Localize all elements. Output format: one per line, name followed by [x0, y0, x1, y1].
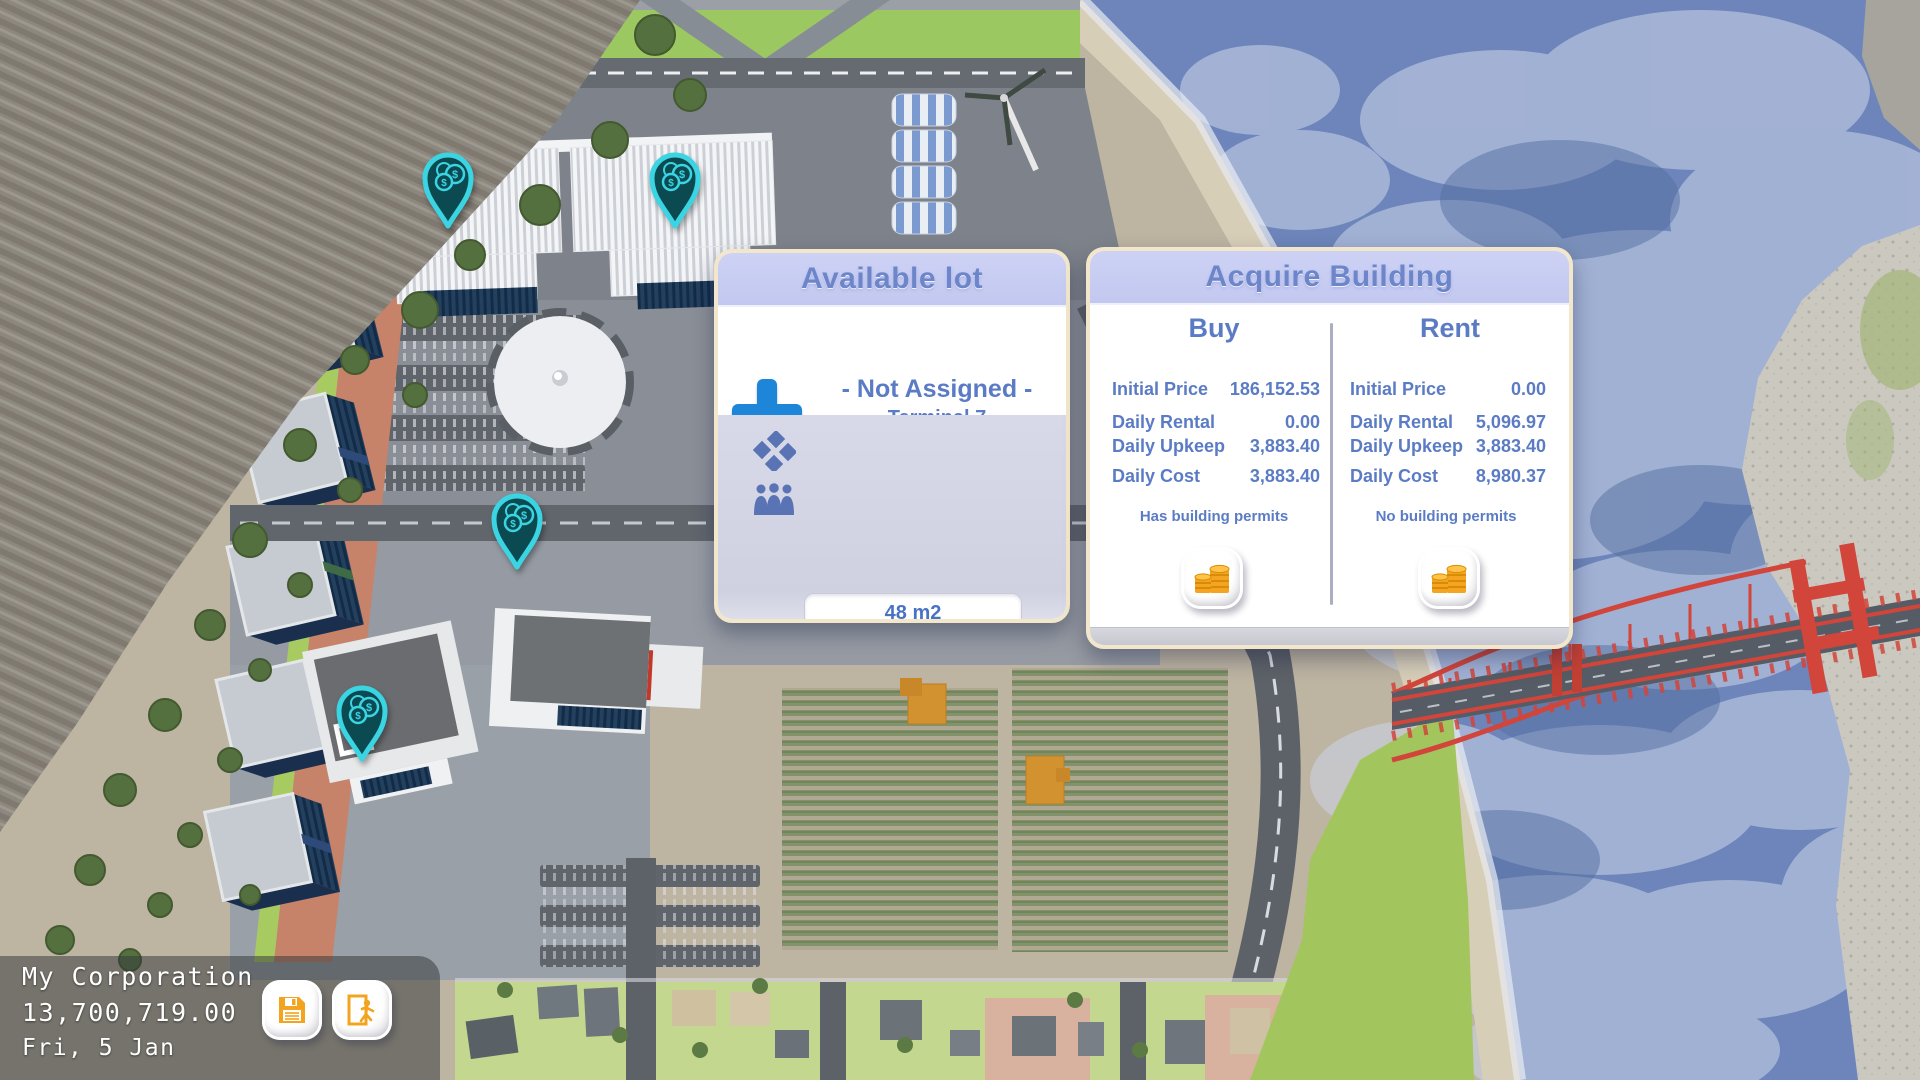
row-label: Initial Price: [1350, 379, 1446, 401]
suburb: [455, 978, 1350, 1080]
panel-footer: [1090, 627, 1569, 645]
map-pin[interactable]: $ $: [422, 151, 474, 229]
coins-icon: [1193, 560, 1231, 596]
area-diamond-icon: [752, 431, 796, 471]
map-pin[interactable]: $ $: [649, 151, 701, 229]
panel-title: Available lot: [801, 262, 983, 296]
exit-door-icon: [345, 993, 379, 1027]
coin-symbol: $: [452, 169, 458, 181]
game-date: Fri, 5 Jan: [22, 1035, 175, 1061]
buy-daily-cost-row: Daily Cost 3,883.40: [1112, 466, 1320, 488]
row-label: Daily Upkeep: [1350, 436, 1463, 458]
map-pin[interactable]: $ $: [491, 492, 543, 570]
row-label: Daily Rental: [1112, 412, 1215, 434]
coin-symbol: $: [366, 702, 372, 714]
game-screen: $ $ $ $ $ $ $ $: [0, 0, 1920, 1080]
row-value: 186,152.53: [1230, 379, 1320, 401]
exit-button[interactable]: [332, 980, 392, 1040]
assignment-status: - Not Assigned -: [814, 375, 1060, 404]
map-pin[interactable]: $ $: [336, 684, 388, 762]
lot-size-field[interactable]: 48 m2: [804, 593, 1022, 623]
coin-symbol: $: [355, 711, 361, 722]
buy-daily-upkeep-row: Daily Upkeep 3,883.40: [1112, 436, 1320, 458]
people-icon: [752, 481, 796, 521]
coin-symbol: $: [521, 510, 527, 522]
panel-title: Acquire Building: [1206, 260, 1454, 294]
save-floppy-icon: [275, 993, 309, 1027]
rent-permits-note: No building permits: [1342, 508, 1550, 525]
row-value: 3,883.40: [1476, 436, 1546, 458]
corporation-balance: 13,700,719.00: [22, 998, 237, 1027]
available-lot-panel: Available lot - Not Assigned - Terminal …: [714, 249, 1070, 623]
buy-initial-price-row: Initial Price 186,152.53: [1112, 379, 1320, 401]
coin-symbol: $: [668, 178, 674, 189]
rent-daily-upkeep-row: Daily Upkeep 3,883.40: [1350, 436, 1546, 458]
coin-symbol: $: [679, 169, 685, 181]
row-value: 0.00: [1285, 412, 1320, 434]
row-value: 3,883.40: [1250, 436, 1320, 458]
buy-permits-note: Has building permits: [1110, 508, 1318, 525]
row-value: 0.00: [1511, 379, 1546, 401]
buy-button[interactable]: [1181, 547, 1243, 609]
row-label: Daily Rental: [1350, 412, 1453, 434]
rent-daily-rental-row: Daily Rental 5,096.97: [1350, 412, 1546, 434]
buy-header: Buy: [1110, 313, 1318, 344]
rent-button[interactable]: [1418, 547, 1480, 609]
rent-daily-cost-row: Daily Cost 8,980.37: [1350, 466, 1546, 488]
row-label: Daily Upkeep: [1112, 436, 1225, 458]
column-divider: [1330, 323, 1333, 605]
save-button[interactable]: [262, 980, 322, 1040]
row-value: 8,980.37: [1476, 466, 1546, 488]
coin-symbol: $: [510, 519, 516, 530]
row-label: Daily Cost: [1112, 466, 1200, 488]
buy-daily-rental-row: Daily Rental 0.00: [1112, 412, 1320, 434]
row-value: 3,883.40: [1250, 466, 1320, 488]
row-label: Daily Cost: [1350, 466, 1438, 488]
acquire-building-header: Acquire Building: [1090, 251, 1569, 305]
acquire-building-panel: Acquire Building Buy Initial Price 186,1…: [1086, 247, 1573, 649]
coin-symbol: $: [441, 178, 447, 189]
available-lot-header: Available lot: [718, 253, 1066, 307]
rent-initial-price-row: Initial Price 0.00: [1350, 379, 1546, 401]
row-label: Initial Price: [1112, 379, 1208, 401]
corporation-name: My Corporation: [22, 962, 254, 991]
row-value: 5,096.97: [1476, 412, 1546, 434]
lot-summary-section: - Not Assigned - Terminal 7: [718, 309, 1066, 415]
coins-icon: [1430, 560, 1468, 596]
lot-details-section: 48 m2 High i: [718, 415, 1066, 619]
rent-header: Rent: [1346, 313, 1554, 344]
